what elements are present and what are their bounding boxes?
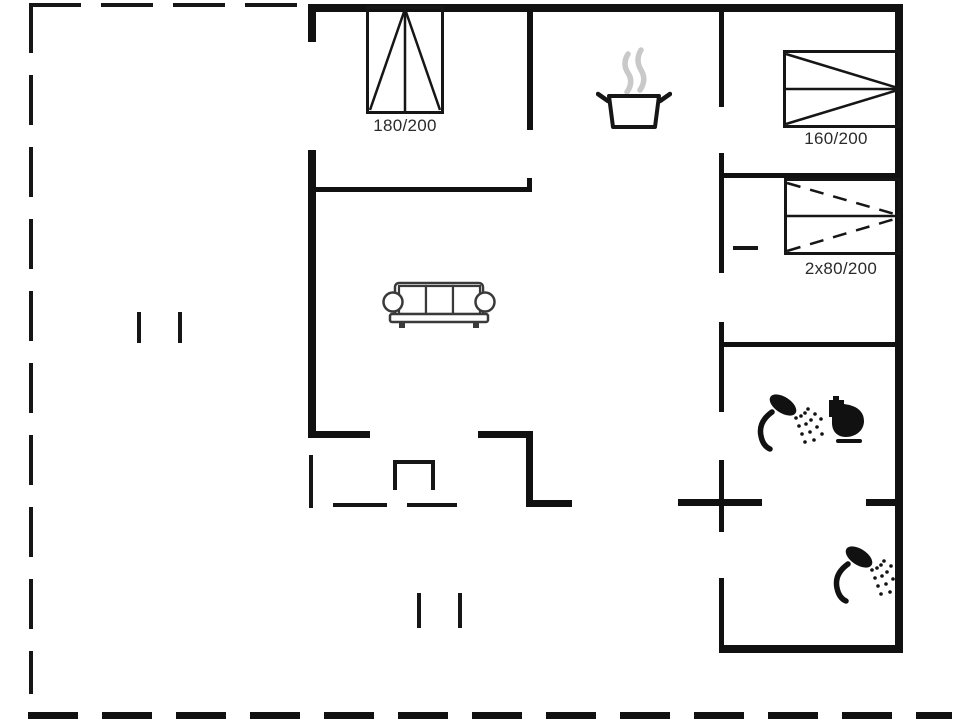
- wall-corridor-end-tick: [527, 178, 532, 192]
- cooking-pot-icon: [596, 46, 672, 130]
- floor-plan: 180/200 160/200 2x80/200: [0, 0, 960, 720]
- wall-shower-room-right: [866, 499, 903, 506]
- wood-stove-icon-right: [431, 460, 435, 490]
- wall-bathroom-divider: [722, 342, 900, 347]
- wall-shower-room-left: [678, 499, 762, 506]
- folding-bed-symbol: [784, 178, 901, 255]
- wall-kitchen-divider: [527, 4, 533, 130]
- wood-stove-icon-left: [393, 460, 397, 490]
- wall-hall-segment-5: [719, 578, 724, 650]
- window-west-low: [309, 455, 313, 508]
- bed-180-label: 180/200: [355, 116, 455, 136]
- wall-hall-segment-2: [719, 153, 724, 273]
- bed-2x80-label: 2x80/200: [789, 259, 893, 279]
- terrace-dashed-boundary-bottom: [28, 712, 952, 719]
- window-south-2: [407, 503, 457, 507]
- shower-icon: [756, 392, 824, 458]
- double-bed-symbol: [366, 6, 444, 114]
- window-south-1: [333, 503, 387, 507]
- wall-hall-segment-3: [719, 322, 724, 412]
- bed-2x80-dash-segment: [733, 246, 758, 250]
- shower-icon: [832, 544, 900, 610]
- wall-hall-segment-4: [719, 460, 724, 532]
- wall-hall-segment-1: [719, 4, 724, 107]
- window-marks-south-1: [417, 593, 421, 628]
- toilet-icon: [822, 394, 868, 446]
- single-bed-symbol: [783, 50, 901, 128]
- wood-stove-icon: [393, 460, 435, 464]
- wall-living-south-c: [533, 500, 572, 507]
- wall-west-upper: [308, 4, 316, 42]
- wall-west-main: [308, 150, 316, 438]
- wall-exterior-bottom: [719, 645, 903, 653]
- wall-corridor: [313, 187, 532, 192]
- terrace-dashed-boundary-left: [29, 3, 33, 694]
- wall-west-foot: [308, 431, 370, 438]
- wall-living-south-b: [526, 431, 533, 507]
- terrace-dashed-boundary-top: [29, 3, 309, 7]
- sofa-icon: [382, 280, 496, 330]
- window-marks-south-2: [458, 593, 462, 628]
- window-marks-west-2: [178, 312, 182, 343]
- window-marks-west-1: [137, 312, 141, 343]
- wall-living-south-a: [478, 431, 533, 438]
- bed-160-label: 160/200: [786, 129, 886, 149]
